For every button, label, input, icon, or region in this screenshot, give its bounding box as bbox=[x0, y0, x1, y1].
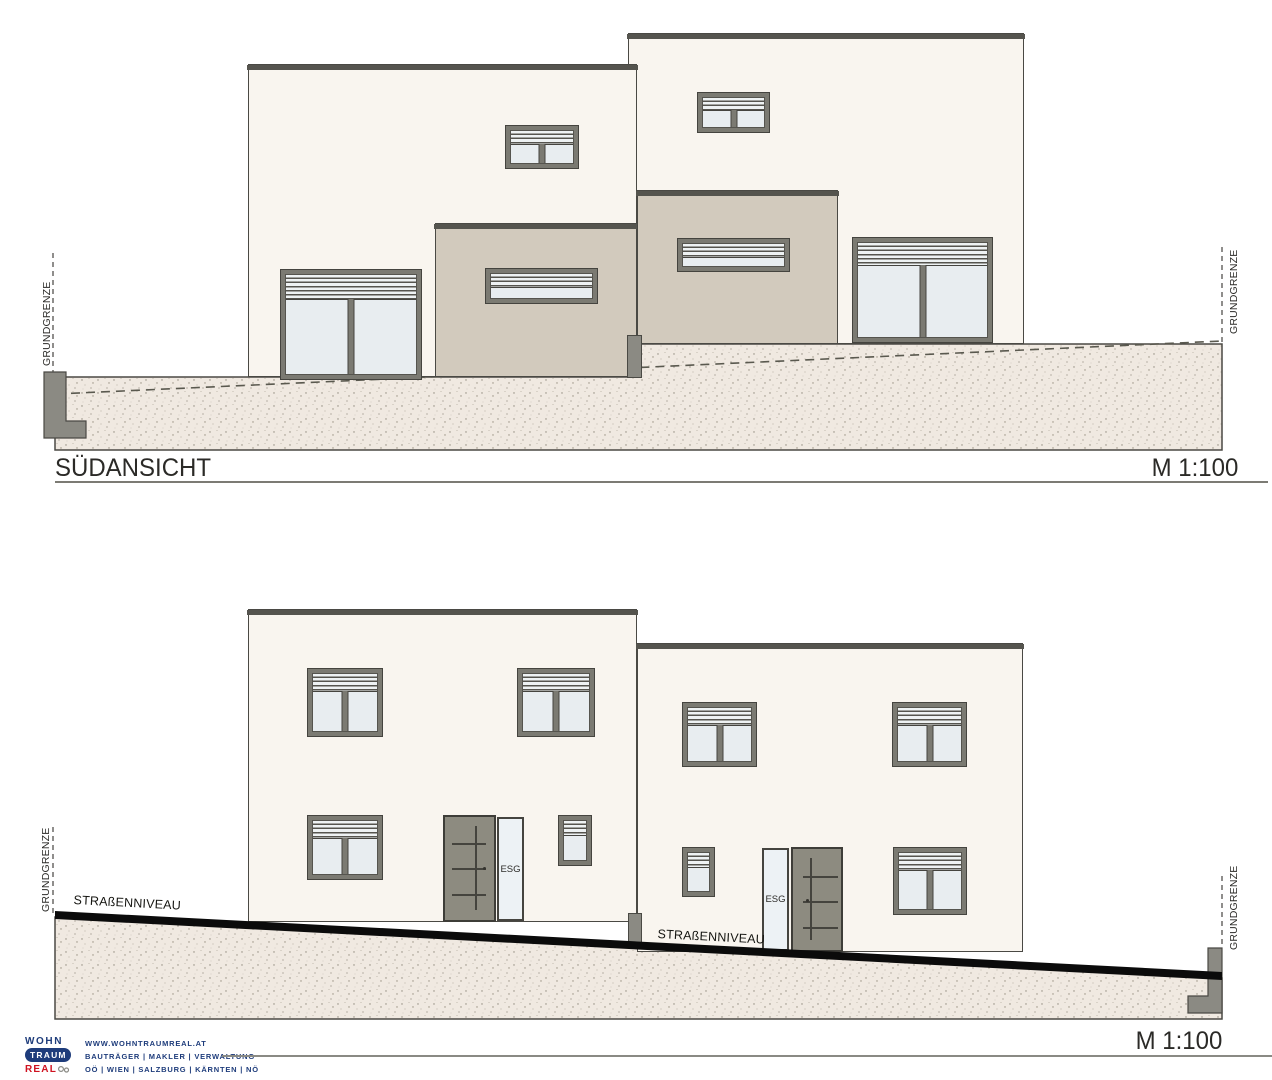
window bbox=[517, 668, 595, 737]
door-sidelight-right: ESG bbox=[762, 848, 789, 951]
window-mullion bbox=[730, 110, 737, 127]
grundgrenze-label-bottom-right: GRUNDGRENZE bbox=[1228, 866, 1240, 950]
street-level-label-left: STRAßENNIVEAU bbox=[73, 893, 181, 913]
grundgrenze-label-bottom-left: GRUNDGRENZE bbox=[40, 828, 52, 912]
roof-edge bbox=[247, 610, 638, 615]
door-sidelight-left: ESG bbox=[497, 817, 524, 921]
view-title: SÜDANSICHT bbox=[55, 454, 211, 483]
window-small bbox=[682, 847, 715, 897]
website-link[interactable]: WWW.WOHNTRAUMREAL.AT bbox=[85, 1037, 259, 1050]
entrance-door-right bbox=[791, 847, 843, 952]
window-blind bbox=[564, 821, 586, 836]
window-mullion bbox=[342, 838, 349, 874]
sliding-window bbox=[280, 269, 422, 380]
door-handle-dot bbox=[483, 867, 486, 870]
window-mullion bbox=[927, 870, 934, 909]
window-blind bbox=[683, 244, 784, 258]
window-blind bbox=[688, 853, 709, 868]
window-small bbox=[558, 815, 592, 866]
window bbox=[505, 125, 579, 169]
window-blind bbox=[898, 708, 961, 726]
ribbon-window bbox=[485, 268, 598, 304]
entrance-door-left bbox=[443, 815, 496, 922]
step-pillar bbox=[628, 913, 642, 947]
elevation-drawing-sheet: GRUNDGRENZE GRUNDGRENZE SÜDANSICHT M 1:1… bbox=[0, 0, 1272, 1080]
scale-label-top: M 1:100 bbox=[1151, 454, 1238, 483]
door-trim-line bbox=[452, 868, 486, 870]
window-blind bbox=[899, 853, 961, 871]
window-mullion bbox=[539, 144, 546, 163]
regions-line: OÖ | WIEN | SALZBURG | KÄRNTEN | NÖ bbox=[85, 1063, 259, 1076]
window-mullion bbox=[919, 265, 926, 337]
window-mullion bbox=[716, 725, 723, 761]
footer-rule bbox=[222, 1055, 1272, 1057]
title-rule-top bbox=[55, 481, 1268, 483]
window-mullion bbox=[553, 691, 560, 731]
door-trim-line bbox=[803, 876, 838, 878]
door-trim-line bbox=[452, 843, 486, 845]
window bbox=[697, 92, 770, 133]
window bbox=[307, 668, 383, 737]
roof-edge bbox=[636, 644, 1024, 649]
logo-word-real: REAL bbox=[25, 1064, 57, 1075]
window bbox=[892, 702, 967, 767]
grundgrenze-label-top-right: GRUNDGRENZE bbox=[1228, 250, 1240, 334]
window-blind bbox=[286, 275, 416, 300]
roof-edge bbox=[627, 34, 1025, 39]
sliding-window bbox=[852, 237, 993, 343]
retaining-wall-top-left bbox=[44, 372, 86, 438]
logo-word-wohn: WOHN bbox=[25, 1036, 75, 1048]
window-blind bbox=[491, 274, 592, 288]
window bbox=[893, 847, 967, 915]
roof-edge bbox=[247, 65, 638, 70]
esg-glass-label: ESG bbox=[500, 864, 520, 875]
window bbox=[682, 702, 757, 767]
door-trim-line bbox=[452, 894, 486, 896]
step-pillar bbox=[627, 335, 642, 378]
roof-edge bbox=[636, 191, 839, 196]
logo-glasses-icon bbox=[57, 1063, 70, 1075]
logo-word-traum: TRAUM bbox=[25, 1048, 71, 1062]
window-mullion bbox=[348, 299, 355, 374]
window-mullion bbox=[342, 691, 349, 731]
retaining-wall-bottom-right bbox=[1188, 948, 1222, 1013]
door-trim-line bbox=[803, 927, 838, 929]
scale-label-bottom: M 1:100 bbox=[1135, 1027, 1222, 1056]
window-blind bbox=[688, 708, 751, 726]
window-blind bbox=[523, 674, 589, 692]
window-blind bbox=[858, 243, 987, 266]
window-mullion bbox=[926, 725, 933, 761]
window bbox=[307, 815, 383, 880]
window-blind bbox=[313, 674, 377, 692]
window-blind bbox=[511, 131, 573, 145]
ribbon-window bbox=[677, 238, 790, 272]
esg-glass-label: ESG bbox=[765, 894, 785, 905]
window-blind bbox=[313, 821, 377, 839]
company-logo: WOHN TRAUM REAL bbox=[25, 1036, 75, 1076]
roof-edge bbox=[434, 224, 638, 229]
grundgrenze-label-top-left: GRUNDGRENZE bbox=[41, 282, 53, 366]
door-handle-dot bbox=[806, 899, 809, 902]
